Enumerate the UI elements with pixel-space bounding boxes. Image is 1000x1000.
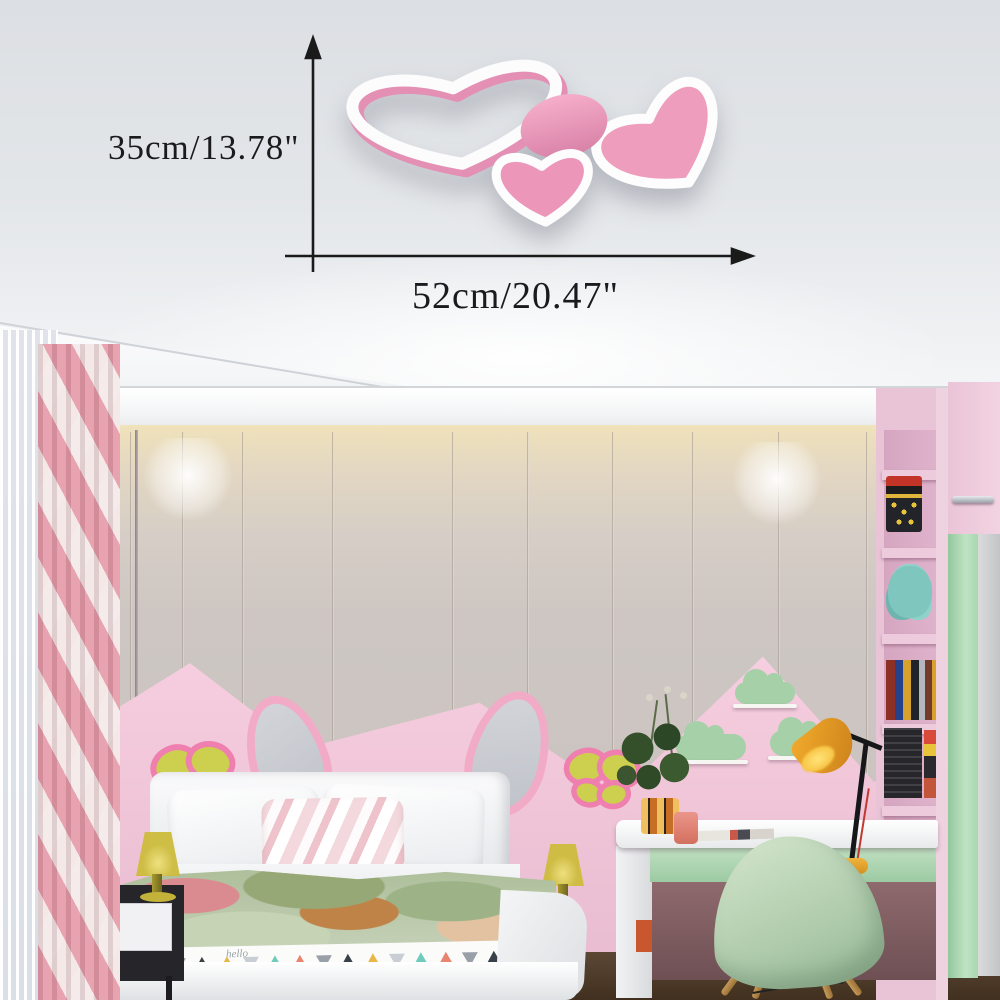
wardrobe-sliding-door-white xyxy=(978,534,1000,976)
cloud-shelf xyxy=(735,682,795,704)
plant-flower xyxy=(664,686,671,693)
bedside-lamp-left-base xyxy=(140,892,176,902)
wardrobe-upper-cabinet xyxy=(948,382,1000,534)
desk-drawer-accent xyxy=(636,920,652,952)
potted-plant xyxy=(610,710,702,806)
speaker xyxy=(884,728,922,798)
arrow-right-icon xyxy=(732,249,752,263)
toy-box-dots xyxy=(889,500,919,530)
cloud-shelf-board xyxy=(733,704,797,708)
width-dimension-label: 52cm/20.47" xyxy=(412,274,619,318)
product-photo-heart-ceiling-lamp: hello xyxy=(0,0,1000,1000)
wardrobe-handle xyxy=(952,496,994,503)
chevron-curtain xyxy=(38,344,120,1000)
books xyxy=(886,660,938,720)
bookshelf-side-panel xyxy=(936,388,948,1000)
wardrobe-sliding-door-green xyxy=(948,534,978,978)
shelf-board xyxy=(882,806,940,816)
spotlight-glow xyxy=(712,442,842,612)
cup xyxy=(674,812,698,844)
plant-flower xyxy=(646,694,653,701)
duvet-script-text: hello xyxy=(226,948,248,961)
nightstand-leg xyxy=(166,976,172,1000)
plant-flower xyxy=(680,692,687,699)
shelf-board xyxy=(882,634,940,644)
arrow-up-icon xyxy=(306,38,320,58)
knot-cushion xyxy=(888,566,932,618)
shelf-board xyxy=(882,548,940,558)
spotlight-glow xyxy=(123,438,253,608)
height-dimension-label: 35cm/13.78" xyxy=(108,128,300,168)
